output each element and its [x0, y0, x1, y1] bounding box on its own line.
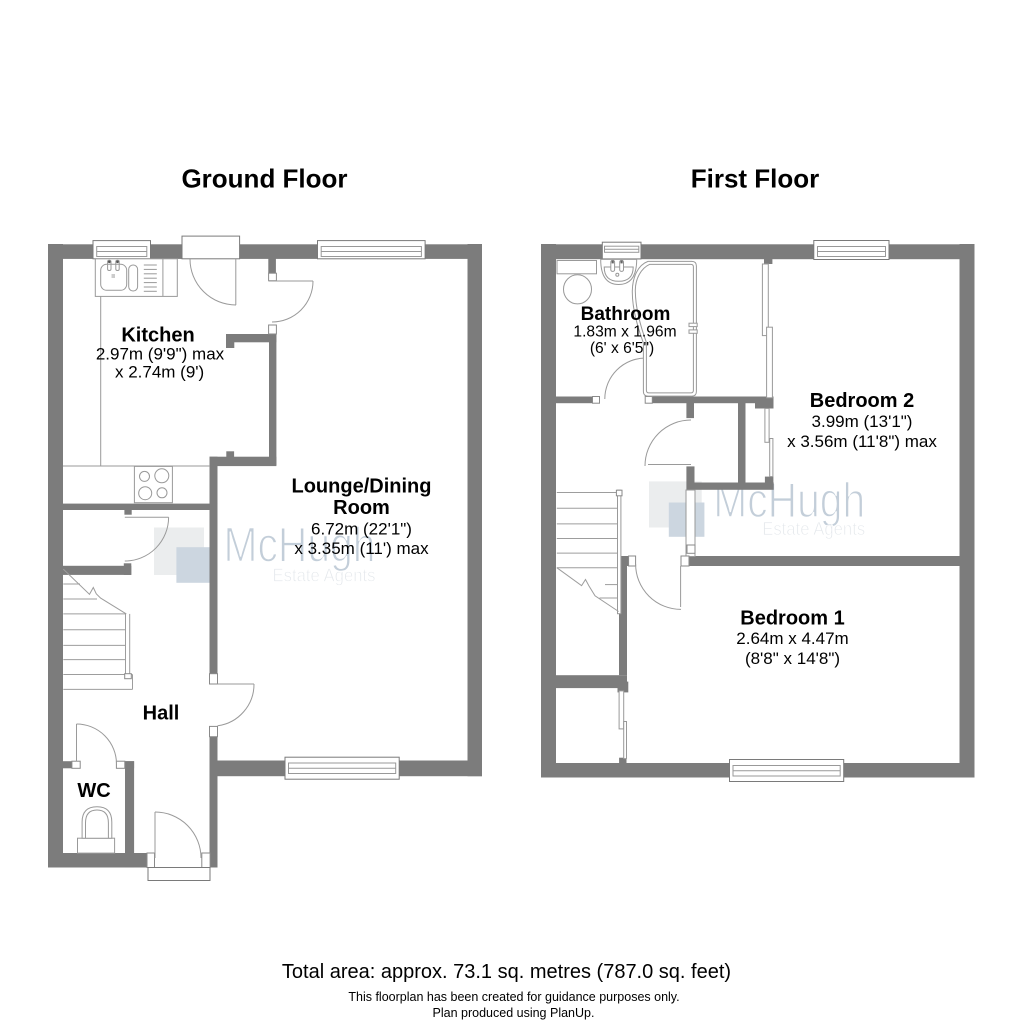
svg-text:(6' x 6'5"): (6' x 6'5")	[590, 340, 654, 357]
svg-text:2.64m x 4.47m: 2.64m x 4.47m	[736, 629, 848, 648]
svg-text:Lounge/Dining: Lounge/Dining	[292, 476, 432, 498]
svg-text:1.83m x 1.96m: 1.83m x 1.96m	[573, 324, 676, 341]
svg-text:x 3.56m (11'8") max: x 3.56m (11'8") max	[787, 432, 937, 451]
svg-text:Bedroom 2: Bedroom 2	[810, 390, 914, 412]
svg-text:Total area: approx. 73.1 sq. m: Total area: approx. 73.1 sq. metres (787…	[282, 961, 731, 983]
svg-text:x 2.74m (9'): x 2.74m (9')	[115, 363, 204, 382]
svg-text:WC: WC	[77, 780, 110, 802]
svg-text:Estate Agents: Estate Agents	[762, 519, 865, 539]
svg-text:(8'8" x 14'8"): (8'8" x 14'8")	[745, 649, 840, 668]
svg-text:6.72m (22'1"): 6.72m (22'1")	[311, 520, 412, 539]
svg-text:x 3.35m (11') max: x 3.35m (11') max	[294, 539, 429, 558]
svg-text:3.99m (13'1"): 3.99m (13'1")	[812, 412, 913, 431]
svg-text:Hall: Hall	[143, 703, 180, 725]
svg-text:Estate Agents: Estate Agents	[273, 566, 376, 586]
svg-text:First Floor: First Floor	[691, 164, 820, 194]
svg-text:Ground Floor: Ground Floor	[181, 164, 347, 194]
svg-text:Bathroom: Bathroom	[581, 304, 671, 325]
svg-text:Kitchen: Kitchen	[121, 325, 194, 347]
svg-text:Room: Room	[333, 497, 390, 519]
svg-text:2.97m (9'9") max: 2.97m (9'9") max	[96, 345, 225, 364]
svg-text:Bedroom 1: Bedroom 1	[740, 608, 844, 630]
svg-text:This floorplan has been create: This floorplan has been created for guid…	[348, 990, 679, 1004]
svg-text:Plan produced using PlanUp.: Plan produced using PlanUp.	[433, 1006, 595, 1020]
